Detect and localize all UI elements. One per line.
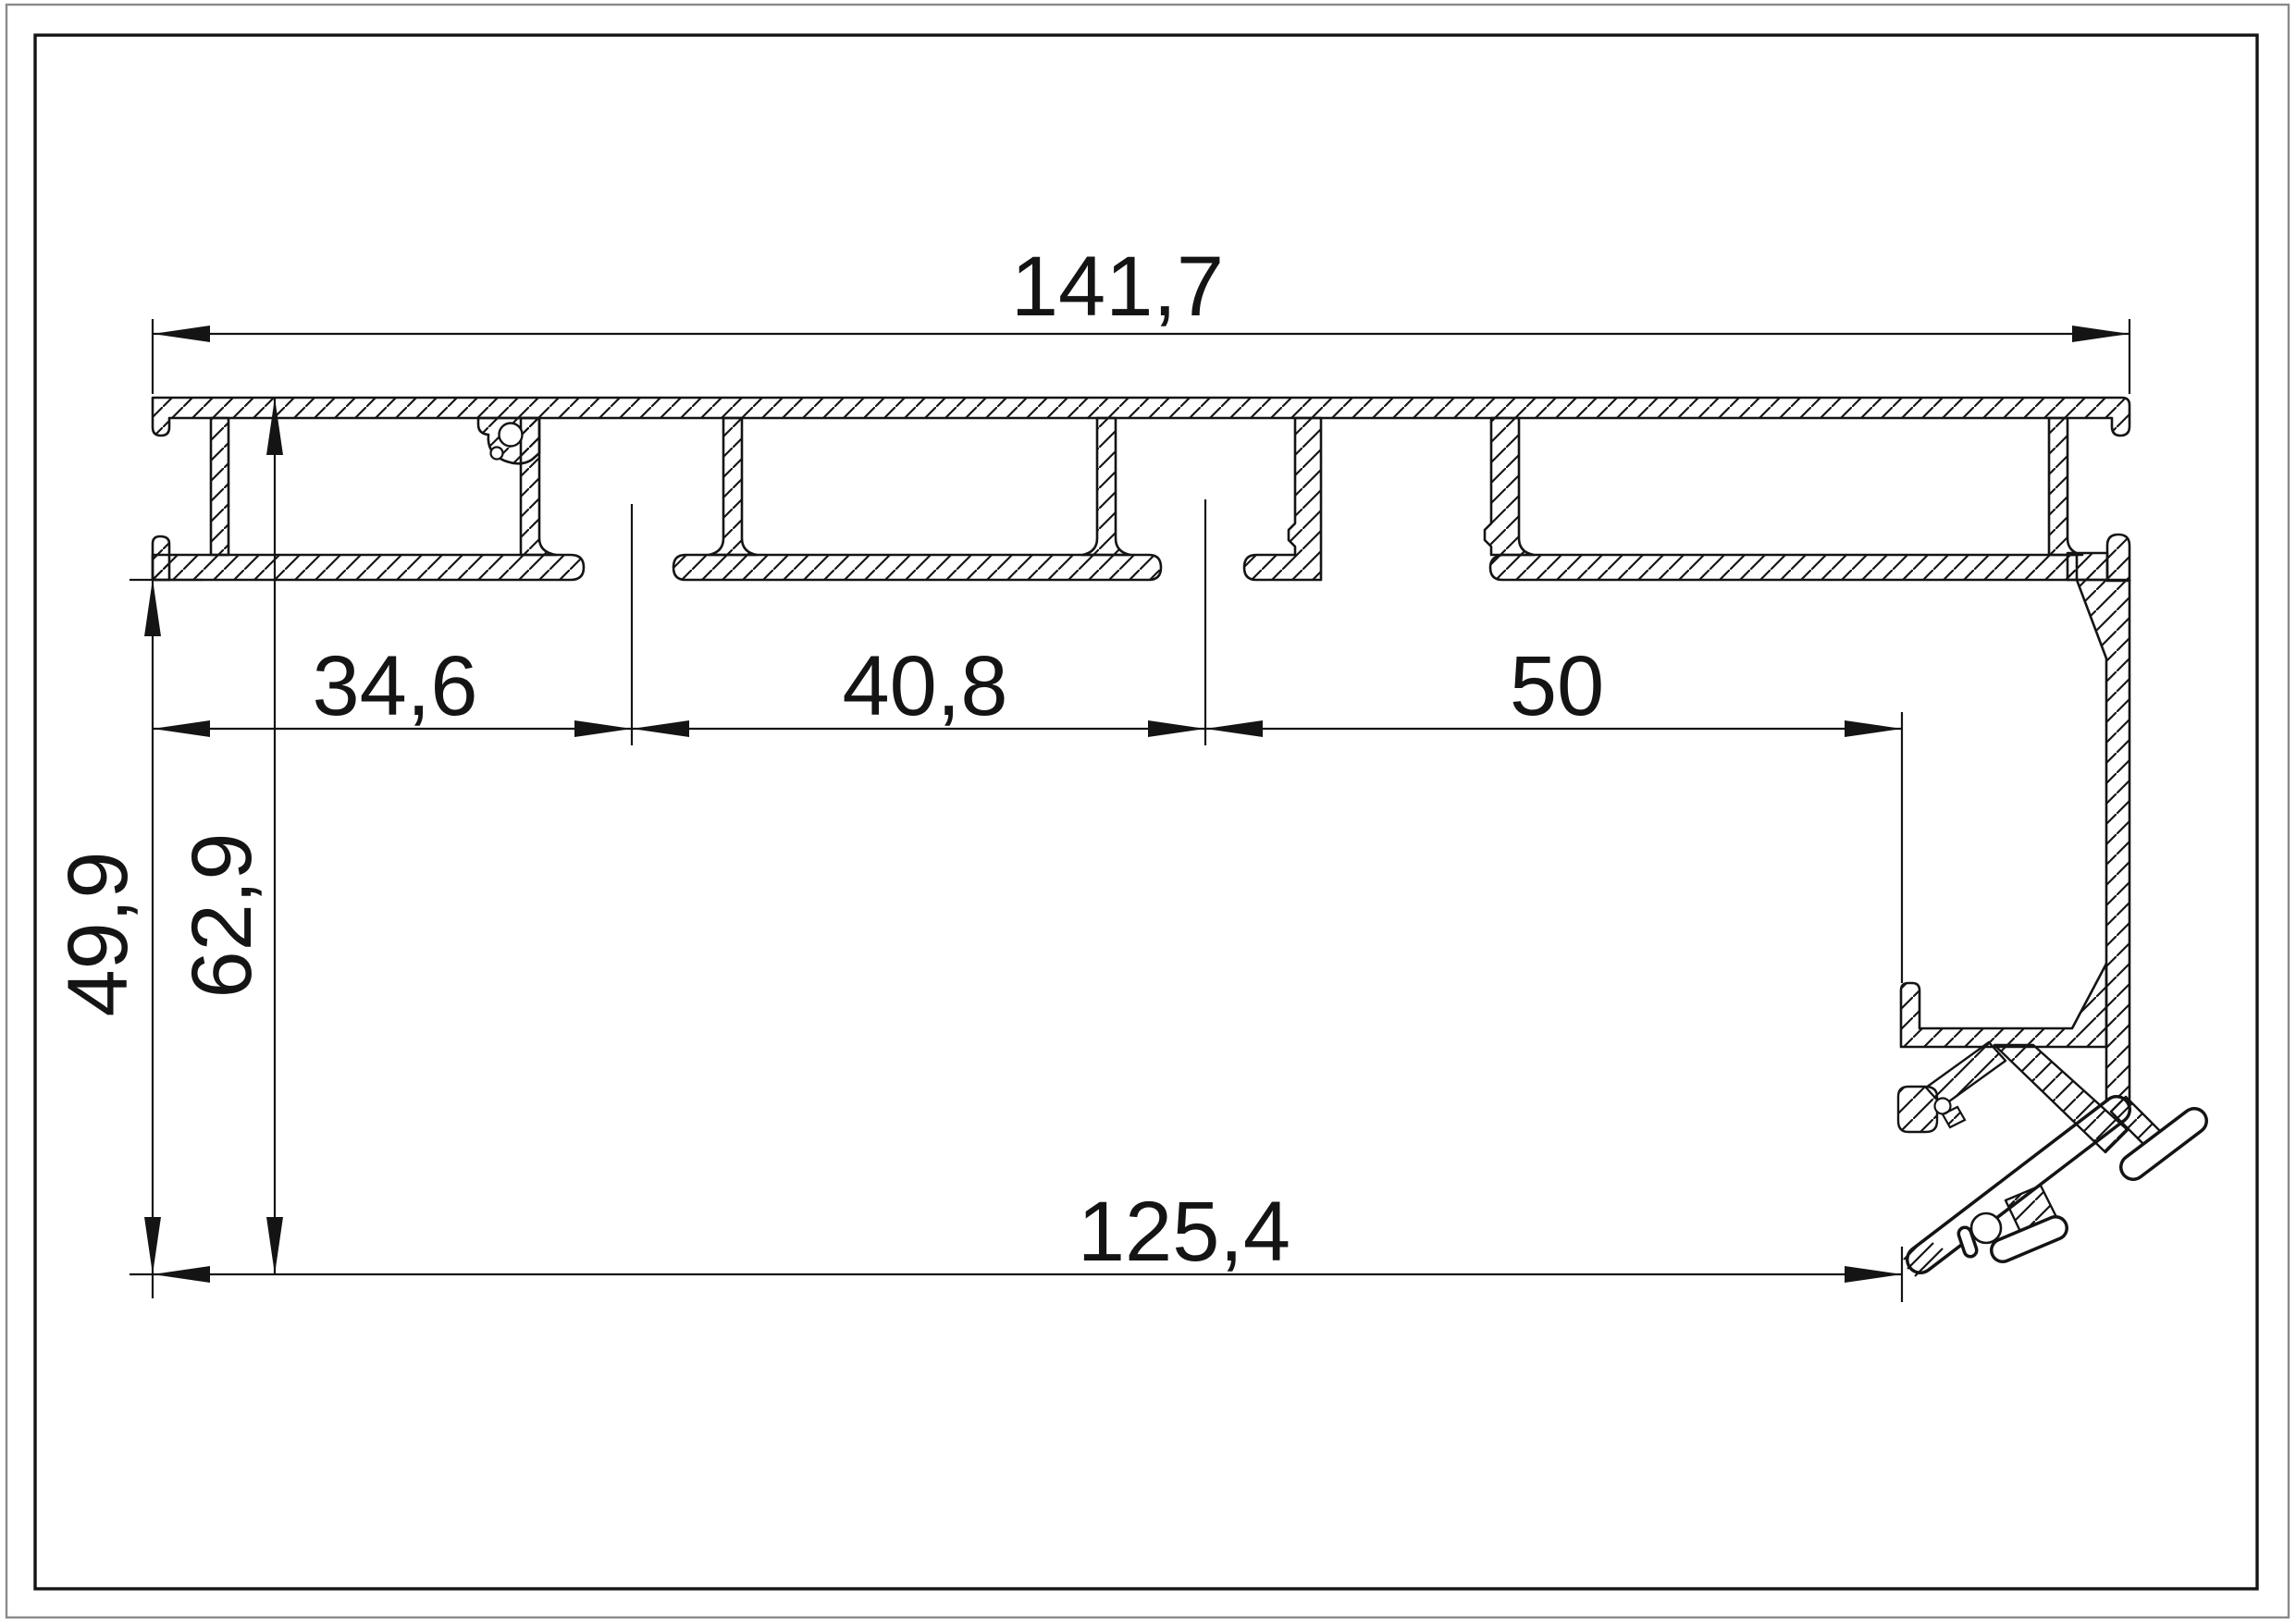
bottom-left-lip <box>153 536 169 580</box>
bottom-plate-left <box>153 555 584 580</box>
screw-channel-opening <box>491 448 503 460</box>
dim-height-right-label: 62,9 <box>175 832 269 998</box>
right-slot-floor <box>2068 553 2107 580</box>
dim-height-left-label: 49,9 <box>51 851 145 1016</box>
left-end-wall <box>211 418 228 555</box>
round-node <box>1898 1087 1937 1132</box>
dim-chain-1-label: 34,6 <box>312 639 477 733</box>
dim-chain-2-label: 40,8 <box>842 639 1007 733</box>
dim-bottom-width-label: 125,4 <box>1078 1185 1290 1279</box>
drawing-sheet: 141,7 34,6 40,8 50 125,4 49,9 62,9 <box>0 0 2296 1623</box>
dim-chain-3-label: 50 <box>1510 639 1604 733</box>
bottom-plate-middle <box>673 555 1161 580</box>
strut-ball <box>1971 1213 2001 1243</box>
strut-tooth <box>1965 1234 1970 1250</box>
right-hook <box>2107 535 2129 581</box>
bottom-plate-right <box>1490 555 2077 580</box>
profile-section-drawing: 141,7 34,6 40,8 50 125,4 49,9 62,9 <box>0 0 2296 1623</box>
screw-channel-hole <box>500 424 523 447</box>
dim-total-width-label: 141,7 <box>1011 240 1224 334</box>
